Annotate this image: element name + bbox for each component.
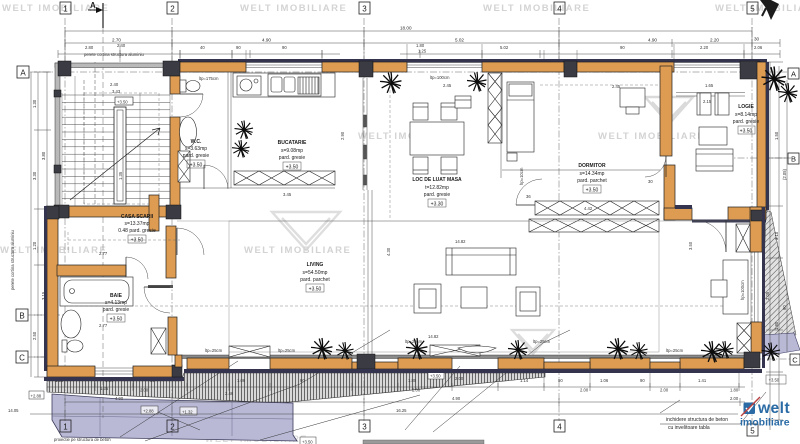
svg-text:WELT IMOBILIARE: WELT IMOBILIARE <box>483 3 590 14</box>
svg-text:3.30: 3.30 <box>32 171 37 180</box>
svg-text:WELT IMOBILIARE: WELT IMOBILIARE <box>598 131 705 142</box>
svg-text:1.35: 1.35 <box>100 386 109 391</box>
svg-text:1.80: 1.80 <box>774 321 779 330</box>
svg-text:s=13.37mp: s=13.37mp <box>125 221 150 227</box>
svg-text:4: 4 <box>557 423 562 432</box>
svg-text:2.06: 2.06 <box>754 45 763 50</box>
svg-text:perete cortina structura alumi: perete cortina structura aluminiu <box>10 230 15 290</box>
svg-text:90: 90 <box>782 305 787 310</box>
svg-text:perete cortina structura alumi: perete cortina structura aluminiu <box>84 52 144 57</box>
svg-text:2.70: 2.70 <box>112 38 121 43</box>
svg-text:18.00: 18.00 <box>400 26 412 31</box>
svg-text:+3.50: +3.50 <box>740 129 753 135</box>
svg-text:90: 90 <box>640 378 645 383</box>
svg-text:5.02: 5.02 <box>455 38 464 43</box>
svg-text:1.06: 1.06 <box>600 378 609 383</box>
svg-text:2.40: 2.40 <box>110 82 119 87</box>
svg-text:LOC DE LUAT MASA: LOC DE LUAT MASA <box>412 177 462 183</box>
svg-text:2.45: 2.45 <box>443 83 452 88</box>
svg-text:2: 2 <box>170 423 175 432</box>
svg-text:2.05: 2.05 <box>765 291 770 300</box>
svg-text:+3.50: +3.50 <box>190 163 203 169</box>
svg-text:s=14.34mp: s=14.34mp <box>580 171 605 177</box>
svg-text:ltp=100cm: ltp=100cm <box>430 75 450 80</box>
svg-text:16.25: 16.25 <box>396 408 407 413</box>
svg-text:pard. gresie: pard. gresie <box>103 307 130 313</box>
svg-text:+3.50: +3.50 <box>309 287 322 293</box>
svg-text:4.90: 4.90 <box>115 396 124 401</box>
svg-text:hp=10cm: hp=10cm <box>519 167 524 185</box>
svg-text:+1.32: +1.32 <box>182 410 193 415</box>
svg-text:s=3.63mp: s=3.63mp <box>185 146 207 152</box>
svg-text:3.43: 3.43 <box>112 89 121 94</box>
svg-text:1: 1 <box>63 5 68 14</box>
svg-text:3.10: 3.10 <box>774 231 779 240</box>
svg-text:B: B <box>19 312 24 321</box>
svg-text:+3.50: +3.50 <box>110 317 123 323</box>
svg-text:2.20: 2.20 <box>700 45 709 50</box>
svg-text:2.80: 2.80 <box>85 45 94 50</box>
svg-text:+3.50: +3.50 <box>131 238 144 244</box>
svg-text:0.48 pard. gresie: 0.48 pard. gresie <box>118 228 156 234</box>
svg-text:2.50: 2.50 <box>32 331 37 340</box>
svg-text:LOGIE: LOGIE <box>738 104 754 110</box>
svg-text:3: 3 <box>362 5 367 14</box>
svg-text:2.15: 2.15 <box>703 99 712 104</box>
svg-text:1: 1 <box>63 423 68 432</box>
svg-text:ltp=25cm: ltp=25cm <box>405 339 423 344</box>
svg-text:2.00: 2.00 <box>660 388 669 393</box>
svg-text:inchidere structura de beton: inchidere structura de beton <box>666 417 728 423</box>
svg-text:4.42: 4.42 <box>584 206 593 211</box>
svg-text:1.50: 1.50 <box>774 131 779 140</box>
svg-text:+3.50: +3.50 <box>302 440 313 444</box>
svg-text:3.50: 3.50 <box>688 241 693 250</box>
svg-text:1.80: 1.80 <box>408 378 417 383</box>
svg-text:s=54.50mp: s=54.50mp <box>303 270 328 276</box>
svg-text:14.05: 14.05 <box>8 408 19 413</box>
svg-text:DORMITOR: DORMITOR <box>578 163 606 169</box>
svg-text:1.25: 1.25 <box>418 49 427 54</box>
svg-text:90: 90 <box>620 45 625 50</box>
svg-text:pard. gresie: pard. gresie <box>279 155 306 161</box>
svg-text:2.45: 2.45 <box>612 84 621 89</box>
svg-text:5.02: 5.02 <box>500 45 509 50</box>
svg-text:pard. parchet: pard. parchet <box>577 178 607 184</box>
svg-text:+3.50: +3.50 <box>586 188 599 194</box>
svg-text:2.00: 2.00 <box>580 388 589 393</box>
svg-text:40: 40 <box>200 45 205 50</box>
svg-text:+3.30: +3.30 <box>431 202 444 208</box>
svg-text:90: 90 <box>300 378 305 383</box>
svg-text:3.45: 3.45 <box>283 192 292 197</box>
svg-text:+3.50: +3.50 <box>430 374 441 379</box>
svg-text:1.80: 1.80 <box>730 388 739 393</box>
svg-text:W.C.: W.C. <box>191 139 202 145</box>
svg-text:1.41: 1.41 <box>698 378 707 383</box>
svg-text:BUCATARIE: BUCATARIE <box>278 140 307 146</box>
svg-text:1.30: 1.30 <box>32 99 37 108</box>
svg-text:2.46: 2.46 <box>225 391 234 396</box>
svg-text:2.40: 2.40 <box>117 43 126 48</box>
svg-text:ltp=25cm: ltp=25cm <box>205 348 223 353</box>
svg-text:14.82: 14.82 <box>428 334 439 339</box>
svg-text:LIVING: LIVING <box>307 262 324 268</box>
svg-text:A: A <box>791 70 796 79</box>
svg-text:+3.50: +3.50 <box>117 100 128 105</box>
svg-text:B: B <box>791 155 796 164</box>
svg-text:2.77: 2.77 <box>99 251 108 256</box>
svg-text:1.80: 1.80 <box>416 43 425 48</box>
svg-text:36: 36 <box>526 194 531 199</box>
svg-text:C: C <box>19 354 25 363</box>
svg-text:(2.05): (2.05) <box>782 168 787 180</box>
svg-text:imobiliare: imobiliare <box>740 417 790 429</box>
svg-text:ltp=175cm: ltp=175cm <box>199 76 219 81</box>
svg-text:ltp=25cm: ltp=25cm <box>278 348 296 353</box>
svg-text:WELT IMOBILIARE: WELT IMOBILIARE <box>715 3 800 14</box>
svg-text:1.20: 1.20 <box>32 241 37 250</box>
svg-text:2: 2 <box>170 5 175 14</box>
svg-text:welt: welt <box>757 400 790 417</box>
svg-text:ltp=25cm: ltp=25cm <box>533 339 551 344</box>
svg-text:1.35: 1.35 <box>118 171 123 180</box>
svg-text:2.00: 2.00 <box>140 388 149 393</box>
svg-text:1.65: 1.65 <box>705 83 714 88</box>
svg-text:s=8.14mp: s=8.14mp <box>735 112 757 118</box>
svg-text:90: 90 <box>236 45 241 50</box>
svg-text:pard. gresie: pard. gresie <box>424 192 451 198</box>
svg-text:2.20: 2.20 <box>710 38 719 43</box>
svg-text:+2.88: +2.88 <box>31 394 42 399</box>
svg-text:4.90: 4.90 <box>262 38 271 43</box>
svg-text:2.00: 2.00 <box>455 376 464 381</box>
svg-text:hp=100cm: hp=100cm <box>740 280 745 300</box>
svg-text:3: 3 <box>362 423 367 432</box>
svg-text:4: 4 <box>557 5 562 14</box>
svg-text:t=12.82mp: t=12.82mp <box>425 185 449 191</box>
svg-text:A: A <box>90 1 96 10</box>
svg-text:pard. gresie: pard. gresie <box>183 153 210 159</box>
svg-text:3.80: 3.80 <box>41 151 46 160</box>
svg-text:WELT IMOBILIARE: WELT IMOBILIARE <box>240 3 347 14</box>
svg-text:2.77: 2.77 <box>99 323 108 328</box>
svg-text:cu invelitoare tabla: cu invelitoare tabla <box>668 425 710 431</box>
svg-text:ltp=25cm: ltp=25cm <box>666 348 684 353</box>
svg-text:A: A <box>20 69 26 78</box>
svg-text:90: 90 <box>558 378 563 383</box>
svg-text:2.00: 2.00 <box>412 388 421 393</box>
svg-text:+3.50: +3.50 <box>769 378 780 383</box>
svg-text:+2.88: +2.88 <box>143 409 154 414</box>
svg-text:30: 30 <box>648 179 653 184</box>
svg-text:2.90: 2.90 <box>340 131 345 140</box>
svg-text:s=9.08mp: s=9.08mp <box>281 148 303 154</box>
svg-text:proiectie pe structura de beto: proiectie pe structura de beton <box>54 437 111 442</box>
svg-text:1.14: 1.14 <box>520 378 529 383</box>
svg-text:4.90: 4.90 <box>452 396 461 401</box>
svg-text:30: 30 <box>754 37 760 42</box>
svg-text:pard. gresie: pard. gresie <box>733 119 760 125</box>
svg-text:+3.50: +3.50 <box>286 165 299 171</box>
svg-text:2.00: 2.00 <box>730 396 739 401</box>
svg-text:1.06: 1.06 <box>237 378 246 383</box>
svg-text:s=4.13mp: s=4.13mp <box>105 300 127 306</box>
svg-text:5: 5 <box>750 5 755 14</box>
svg-text:90: 90 <box>282 45 287 50</box>
svg-text:BAIE: BAIE <box>110 293 123 299</box>
svg-text:C: C <box>792 356 798 365</box>
svg-text:CASA SCARII: CASA SCARII <box>121 214 154 220</box>
svg-text:14.82: 14.82 <box>455 239 466 244</box>
svg-text:4.30: 4.30 <box>386 247 391 256</box>
svg-text:4.90: 4.90 <box>648 38 657 43</box>
svg-text:pard. parchet: pard. parchet <box>300 277 330 283</box>
svg-text:WELT IMOBILIARE: WELT IMOBILIARE <box>244 245 351 256</box>
